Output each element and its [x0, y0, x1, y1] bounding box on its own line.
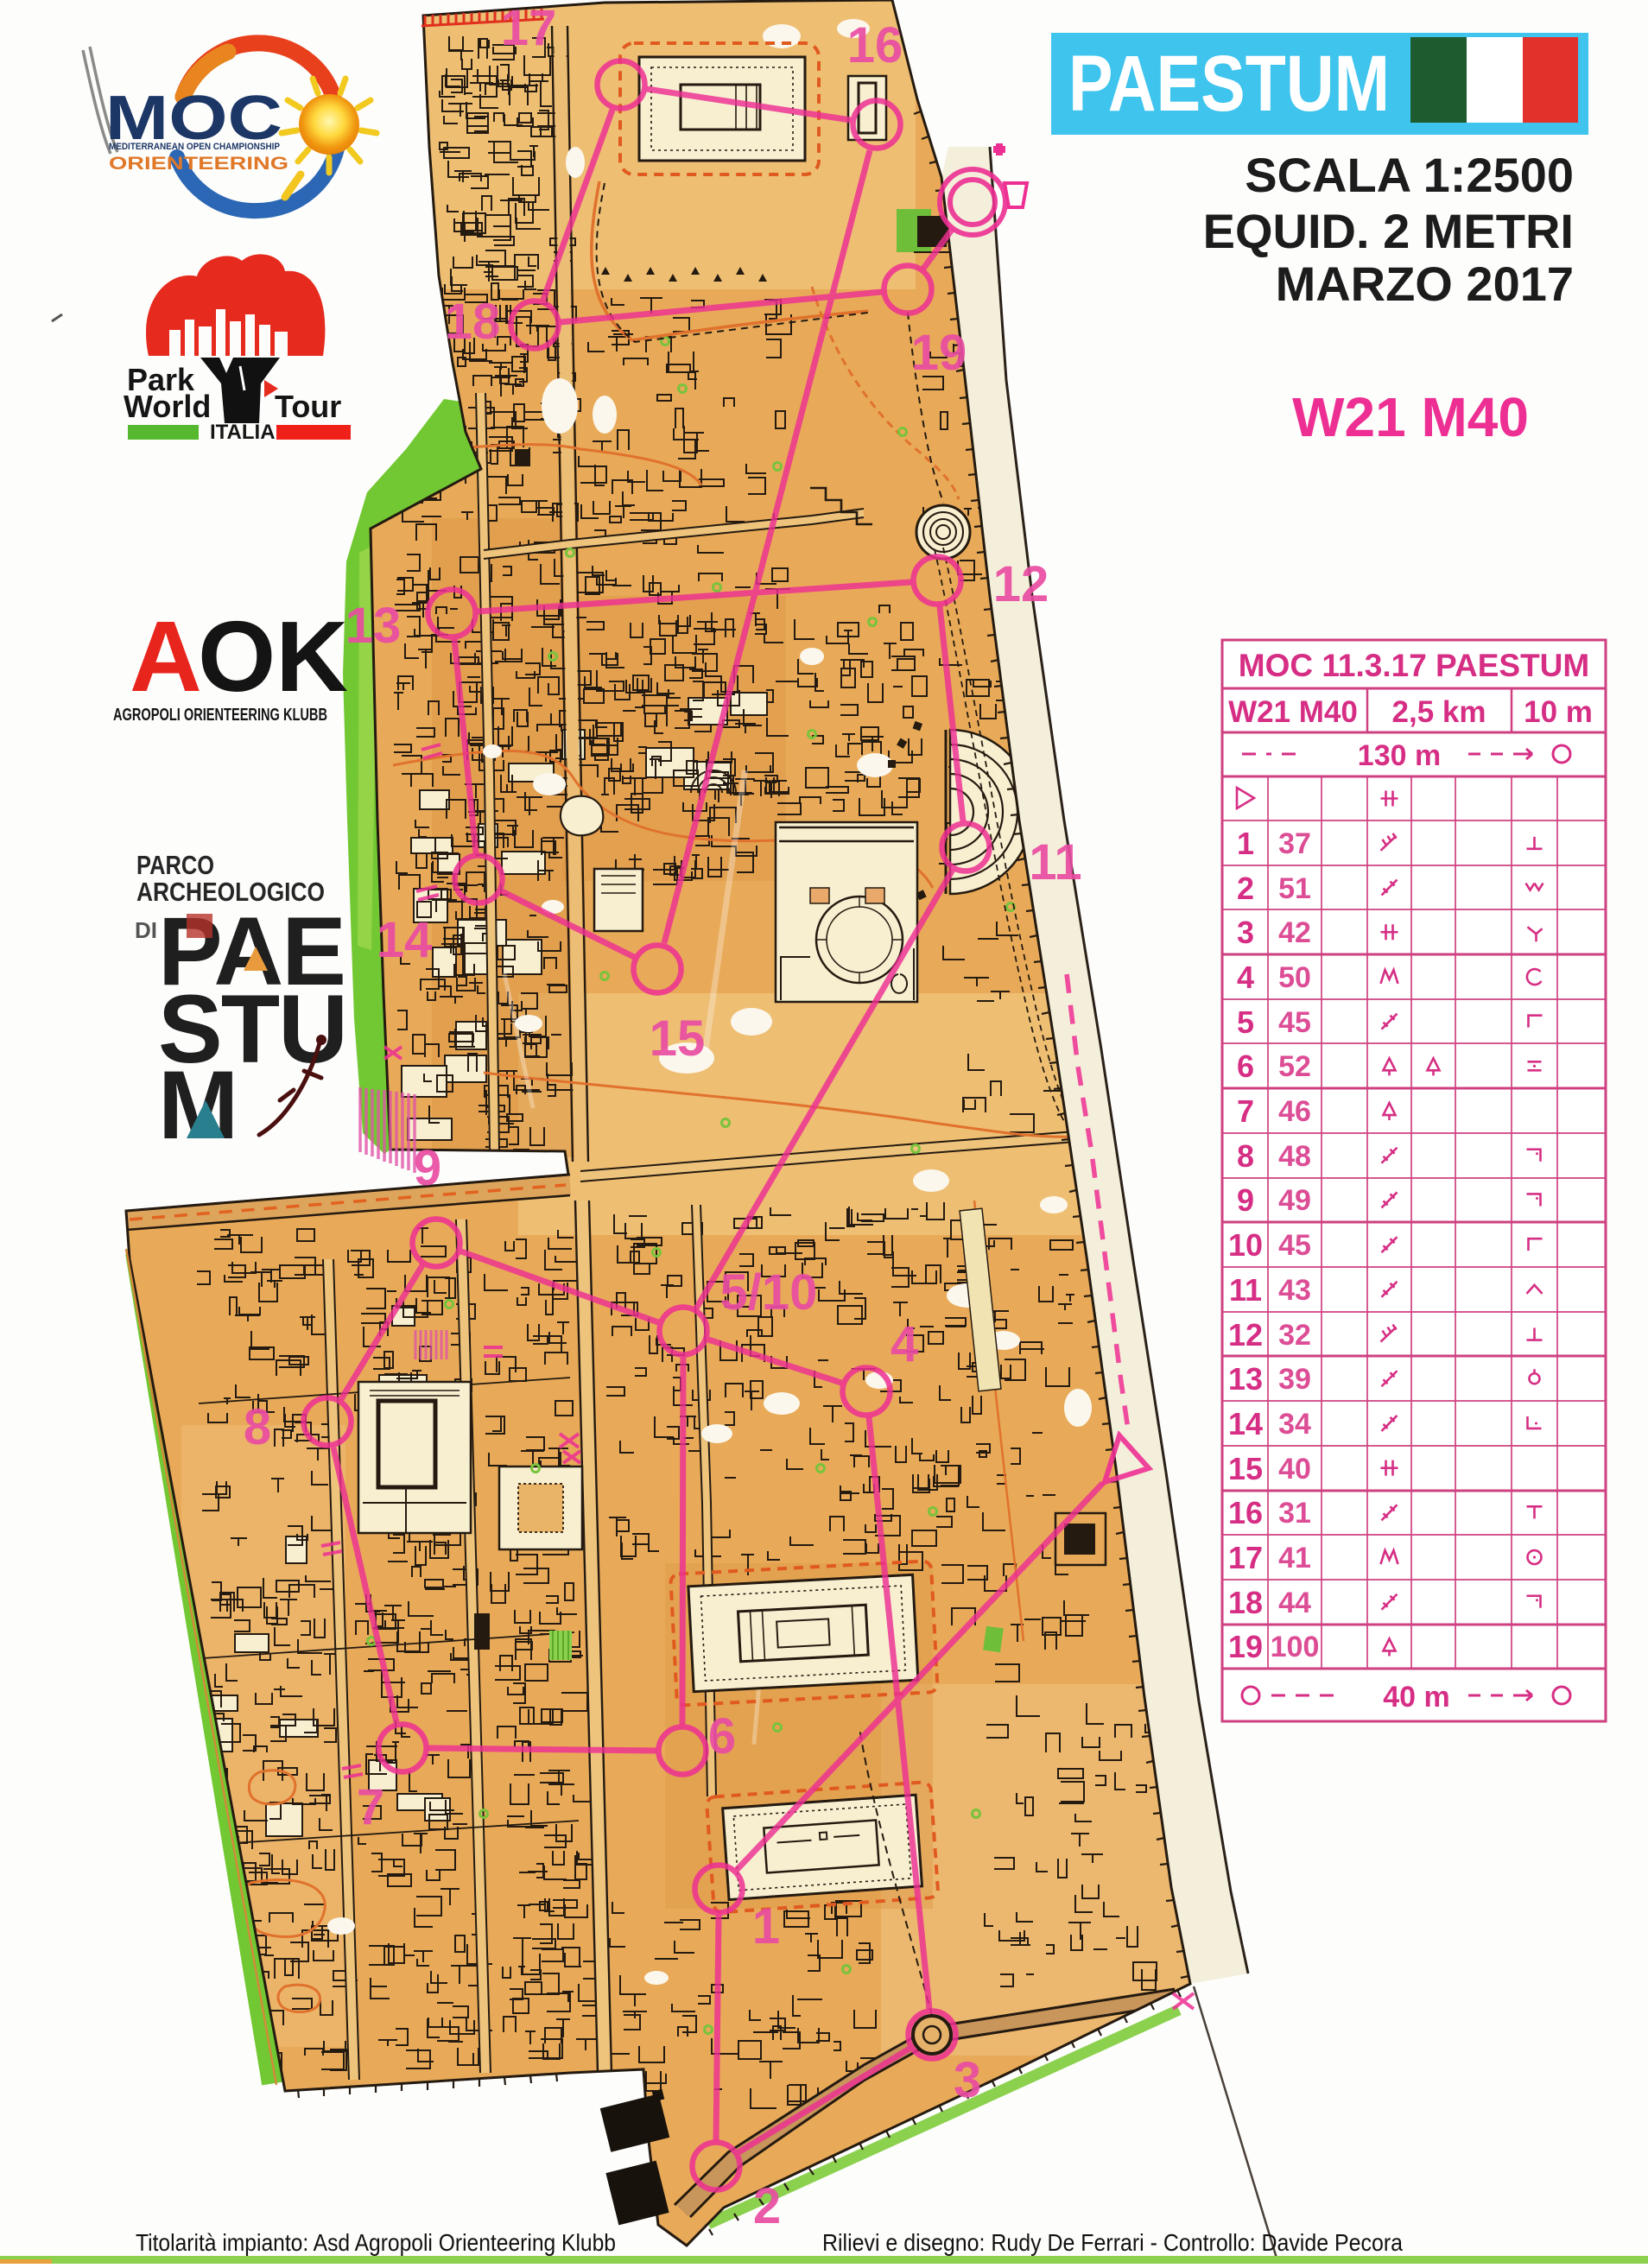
svg-text:6: 6 — [708, 1708, 736, 1764]
svg-text:15: 15 — [650, 1010, 706, 1067]
svg-text:3: 3 — [1237, 915, 1254, 950]
svg-text:8: 8 — [1237, 1138, 1254, 1174]
svg-text:43: 43 — [1278, 1274, 1311, 1307]
svg-text:11: 11 — [1029, 834, 1081, 890]
svg-text:17: 17 — [1228, 1540, 1263, 1575]
svg-text:51: 51 — [1278, 872, 1311, 905]
svg-text:40 m: 40 m — [1383, 1681, 1450, 1714]
svg-text:19: 19 — [1228, 1629, 1263, 1664]
svg-text:31: 31 — [1278, 1497, 1311, 1530]
svg-text:PAESTUM: PAESTUM — [1068, 40, 1390, 128]
svg-text:SCALA 1:2500: SCALA 1:2500 — [1245, 148, 1574, 202]
svg-text:39: 39 — [1278, 1363, 1311, 1396]
svg-text:13: 13 — [345, 598, 402, 654]
svg-text:14: 14 — [377, 912, 433, 968]
svg-text:AGROPOLI ORIENTEERING KLUBB: AGROPOLI ORIENTEERING KLUBB — [113, 706, 327, 725]
svg-text:1: 1 — [1237, 826, 1254, 861]
svg-text:12: 12 — [1228, 1317, 1263, 1353]
svg-text:5: 5 — [1237, 1004, 1254, 1040]
svg-text:Rilievi e disegno: Rudy De Fer: Rilievi e disegno: Rudy De Ferrari - Con… — [822, 2229, 1403, 2256]
svg-text:130 m: 130 m — [1358, 739, 1441, 772]
svg-text:16: 16 — [1228, 1495, 1263, 1530]
svg-text:40: 40 — [1278, 1453, 1311, 1486]
svg-text:7: 7 — [1237, 1093, 1254, 1129]
svg-text:ITALIA: ITALIA — [210, 421, 276, 444]
svg-text:37: 37 — [1278, 827, 1311, 860]
svg-text:PARCO: PARCO — [136, 850, 214, 880]
svg-text:5/10: 5/10 — [720, 1264, 818, 1321]
svg-text:34: 34 — [1278, 1408, 1311, 1441]
svg-text:MOC 11.3.17 PAESTUM: MOC 11.3.17 PAESTUM — [1239, 648, 1589, 683]
svg-text:9: 9 — [1237, 1182, 1254, 1218]
svg-text:10: 10 — [1228, 1227, 1263, 1263]
svg-text:32: 32 — [1278, 1319, 1311, 1352]
svg-text:DI: DI — [135, 917, 157, 943]
svg-text:MARZO 2017: MARZO 2017 — [1276, 257, 1574, 311]
svg-text:World: World — [124, 389, 211, 424]
svg-text:42: 42 — [1278, 916, 1311, 949]
svg-text:41: 41 — [1278, 1542, 1311, 1574]
svg-text:EQUID. 2 METRI: EQUID. 2 METRI — [1203, 204, 1574, 258]
svg-text:100: 100 — [1271, 1631, 1320, 1663]
svg-text:17: 17 — [501, 0, 557, 56]
svg-text:52: 52 — [1278, 1050, 1311, 1083]
svg-text:M: M — [158, 1051, 238, 1159]
svg-text:18: 18 — [1228, 1585, 1263, 1620]
svg-text:1: 1 — [752, 1898, 780, 1954]
svg-text:46: 46 — [1278, 1095, 1311, 1128]
svg-text:50: 50 — [1278, 961, 1311, 994]
svg-text:W21 M40: W21 M40 — [1292, 386, 1529, 448]
svg-text:A: A — [130, 600, 202, 713]
svg-text:ORIENTEERING: ORIENTEERING — [109, 154, 288, 174]
svg-text:2: 2 — [1237, 871, 1254, 906]
svg-text:MEDITERRANEAN OPEN CHAMPIONSHI: MEDITERRANEAN OPEN CHAMPIONSHIP — [109, 142, 280, 152]
svg-text:4: 4 — [891, 1316, 918, 1372]
svg-text:14: 14 — [1228, 1406, 1263, 1441]
svg-text:45: 45 — [1278, 1229, 1311, 1262]
svg-text:48: 48 — [1278, 1140, 1311, 1173]
svg-text:10 m: 10 m — [1524, 695, 1593, 729]
svg-text:3: 3 — [954, 2052, 981, 2108]
svg-text:4: 4 — [1237, 960, 1254, 995]
svg-text:13: 13 — [1228, 1361, 1263, 1397]
svg-text:2: 2 — [753, 2178, 781, 2234]
svg-text:9: 9 — [414, 1140, 441, 1196]
svg-text:8: 8 — [244, 1399, 271, 1455]
svg-text:W21 M40: W21 M40 — [1228, 695, 1358, 729]
svg-text:OK: OK — [198, 600, 348, 713]
svg-text:19: 19 — [911, 325, 967, 381]
svg-text:6: 6 — [1237, 1048, 1254, 1084]
svg-text:45: 45 — [1278, 1006, 1311, 1039]
svg-text:7: 7 — [357, 1779, 384, 1835]
svg-text:12: 12 — [993, 556, 1049, 612]
svg-text:15: 15 — [1228, 1451, 1263, 1486]
svg-text:2,5 km: 2,5 km — [1392, 695, 1486, 729]
svg-text:Titolarità impianto: Asd Agrop: Titolarità impianto: Asd Agropoli Orient… — [136, 2229, 616, 2256]
svg-text:Tour: Tour — [275, 389, 341, 424]
svg-text:49: 49 — [1278, 1184, 1311, 1217]
svg-text:18: 18 — [445, 294, 501, 350]
svg-text:44: 44 — [1278, 1587, 1311, 1619]
svg-text:11: 11 — [1229, 1272, 1262, 1308]
svg-text:16: 16 — [847, 17, 903, 73]
